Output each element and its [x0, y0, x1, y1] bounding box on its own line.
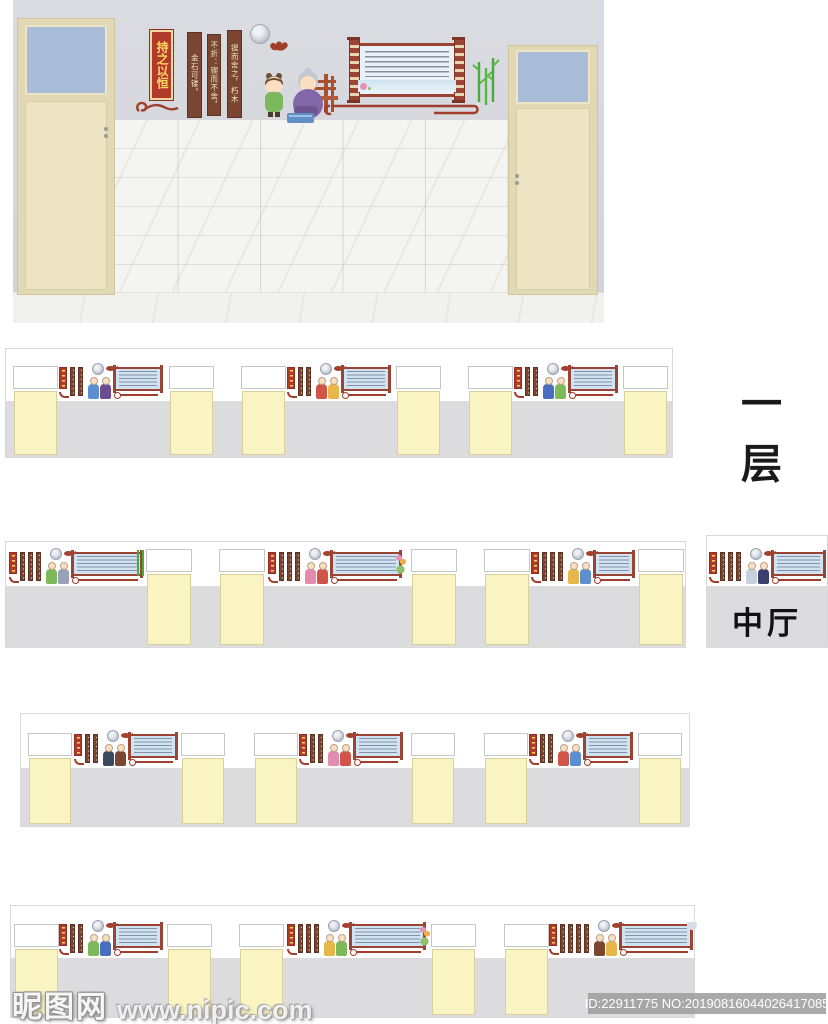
mini-ruyi-icon: [59, 949, 69, 955]
mini-scroll-banner: [620, 924, 692, 948]
door-6: [638, 733, 682, 824]
culture-wall-cluster-2: [287, 363, 392, 401]
mini-figure: [340, 751, 351, 766]
proverb-strip-2: 不折：锲而不舍，: [207, 34, 221, 116]
door-2: [181, 733, 225, 824]
mini-figure: [305, 569, 316, 584]
door-transom-window: [638, 733, 682, 756]
door-panel: [485, 574, 529, 645]
mini-proverb-strip: [542, 552, 547, 581]
mini-scroll-banner: [114, 367, 162, 391]
mini-cartoon-figures: [543, 376, 567, 400]
mini-figure: [558, 751, 569, 766]
door-handle-icon: [104, 127, 108, 131]
door-panel: [168, 949, 211, 1015]
mini-proverb-strip: [287, 552, 292, 581]
door-transom-window: [411, 549, 457, 572]
marble-floor: [13, 292, 604, 323]
fan-icon: [687, 922, 697, 948]
door-panel: [220, 574, 264, 645]
mini-cloud-line-icon: [590, 761, 628, 767]
elevation-row-hall-panel: 中厅: [706, 535, 828, 648]
mini-figure: [758, 569, 769, 584]
left-door-panel: [25, 101, 107, 290]
wainscot-band: [21, 768, 689, 826]
mini-proverb-strip: [36, 552, 41, 581]
door-transom-window: [623, 366, 668, 389]
mini-proverb-strip: [279, 552, 284, 581]
mini-cartoon-figures: [88, 933, 112, 957]
right-door: [508, 45, 598, 295]
cartoon-child-and-grandma: [256, 66, 351, 126]
mini-proverb-strip: [93, 734, 98, 763]
mini-scroll-banner: [331, 552, 401, 576]
mini-figure: [324, 941, 335, 956]
mini-proverb-strip: [310, 734, 315, 763]
door-1: [13, 366, 58, 455]
mini-figure: [100, 941, 111, 956]
wainscot-band: [6, 586, 685, 647]
door-transom-window: [219, 549, 265, 572]
mini-ruyi-icon: [9, 577, 19, 583]
door-panel: [182, 758, 224, 824]
mini-figure: [100, 384, 111, 399]
mini-figure: [555, 384, 566, 399]
mini-cloud-line-icon: [78, 579, 138, 585]
mini-proverb-strip: [85, 734, 90, 763]
mini-plaque: [549, 924, 557, 946]
mini-ruyi-icon: [549, 949, 559, 955]
floor1-label: 一层: [741, 370, 828, 490]
mini-banner-text: [134, 738, 172, 753]
door-transom-window: [169, 366, 214, 389]
door-transom-window: [638, 549, 684, 572]
banner-paragraph-text: [365, 51, 449, 77]
door-panel: [469, 391, 512, 455]
door-panel: [624, 391, 667, 455]
door-panel: [240, 949, 283, 1015]
mini-scroll-banner: [72, 552, 142, 576]
mini-plaque: [529, 734, 537, 756]
mini-ruyi-icon: [74, 759, 84, 765]
door-panel: [412, 574, 456, 645]
mini-ruyi-icon: [514, 392, 524, 398]
mini-proverb-strip: [78, 924, 83, 953]
mini-plaque: [709, 552, 717, 574]
mini-medallion-icon: [562, 730, 574, 742]
culture-wall-cluster-1: [9, 548, 144, 586]
mini-proverb-strip: [295, 552, 300, 581]
mini-proverb-strip: [306, 367, 311, 396]
culture-wall-cluster-1: [709, 548, 827, 586]
door-transom-window: [504, 924, 549, 947]
door-transom-window: [28, 733, 72, 756]
mini-medallion-icon: [328, 920, 340, 932]
door-panel: [255, 758, 297, 824]
mini-scroll-banner: [354, 734, 402, 758]
mini-banner-text: [77, 556, 137, 571]
proverb-strip-3: 锲而舍之，朽木: [227, 30, 242, 118]
mini-cartoon-figures: [746, 561, 770, 585]
bamboo-icon: [471, 50, 503, 105]
mini-proverb-strip: [548, 734, 553, 763]
door-4: [411, 733, 455, 824]
mini-proverb-strip: [70, 367, 75, 396]
mini-plaque: [59, 924, 67, 946]
mini-figure: [46, 569, 57, 584]
right-door-panel: [516, 108, 590, 290]
mini-ruyi-icon: [287, 392, 297, 398]
proverb-strip-1: 金石可镂。: [187, 32, 202, 118]
door-3: [241, 366, 286, 455]
culture-wall-cluster-3: [549, 920, 694, 958]
mini-banner-text: [625, 928, 687, 943]
mini-cloud-line-icon: [778, 579, 821, 585]
door-panel: [505, 949, 548, 1015]
mini-banner-text: [574, 371, 612, 386]
wainscot-band: [6, 401, 672, 457]
mini-cloud-line-icon: [626, 951, 688, 957]
mini-banner-text: [599, 556, 629, 571]
door-panel: [412, 758, 454, 824]
door-transom-window: [468, 366, 513, 389]
mini-banner-text: [359, 738, 397, 753]
left-door: [17, 18, 115, 295]
mini-proverb-strip: [306, 924, 311, 953]
mini-proverb-strip: [298, 924, 303, 953]
mini-medallion-icon: [309, 548, 321, 560]
mini-proverb-strip: [78, 367, 83, 396]
mini-proverb-strip: [525, 367, 530, 396]
door-transom-window: [14, 924, 59, 947]
door-transom-window: [484, 733, 528, 756]
door-5: [468, 366, 513, 455]
mini-medallion-icon: [92, 920, 104, 932]
mini-cloud-line-icon: [356, 951, 421, 957]
door-panel: [242, 391, 285, 455]
culture-wall-cluster-3: [531, 548, 636, 586]
mini-figure: [594, 941, 605, 956]
elevation-row-floor1: [5, 348, 673, 458]
mini-proverb-strip: [584, 924, 589, 953]
mini-medallion-icon: [750, 548, 762, 560]
door-panel: [639, 758, 681, 824]
elevation-row-floor3: [20, 713, 690, 827]
mini-figure: [580, 569, 591, 584]
image-id-bar: ID:22911775 NO:20190816044026417085: [588, 993, 826, 1014]
mini-cloud-line-icon: [360, 761, 398, 767]
mini-proverb-strip: [568, 924, 573, 953]
design-sheet: 持之以恒 金石可镂。 不折：锲而不舍， 锲而舍之，朽木: [0, 0, 828, 1024]
mini-plaque: [74, 734, 82, 756]
door-handle-icon: [515, 174, 519, 178]
mini-medallion-icon: [598, 920, 610, 932]
door-panel: [639, 574, 683, 645]
mini-proverb-strip: [576, 924, 581, 953]
flower-icon: [420, 922, 430, 948]
mini-figure: [543, 384, 554, 399]
mini-medallion-icon: [320, 363, 332, 375]
door-panel: [29, 758, 71, 824]
mini-ruyi-icon: [268, 577, 278, 583]
mini-cartoon-figures: [103, 743, 127, 767]
mini-banner-text: [119, 371, 157, 386]
culture-wall-cluster-1: [74, 730, 179, 768]
mini-proverb-strip: [736, 552, 741, 581]
mini-proverb-strip: [720, 552, 725, 581]
door-2: [169, 366, 214, 455]
door-2: [167, 924, 212, 1015]
mini-banner-text: [589, 738, 627, 753]
door-panel: [14, 391, 57, 455]
mini-figure: [88, 384, 99, 399]
mini-scroll-banner: [584, 734, 632, 758]
door-3: [254, 733, 298, 824]
tile-wainscot: [95, 120, 508, 293]
mini-plaque: [268, 552, 276, 574]
hall-label: 中厅: [707, 598, 827, 643]
mini-ruyi-icon: [529, 759, 539, 765]
door-transom-window: [254, 733, 298, 756]
mini-cartoon-figures: [316, 376, 340, 400]
door-3: [239, 924, 284, 1015]
mini-cloud-line-icon: [600, 579, 630, 585]
mini-medallion-icon: [547, 363, 559, 375]
left-transom-window: [25, 25, 107, 95]
door-4: [431, 924, 476, 1015]
mini-plaque: [9, 552, 17, 574]
mini-figure: [568, 569, 579, 584]
mini-ruyi-icon: [709, 577, 719, 583]
door-6: [623, 366, 668, 455]
door-transom-window: [239, 924, 284, 947]
mini-banner-text: [777, 556, 820, 571]
mini-plaque: [59, 367, 67, 389]
door-4: [396, 366, 441, 455]
interior-render: 持之以恒 金石可镂。 不折：锲而不舍， 锲而舍之，朽木: [13, 0, 604, 323]
door-5: [638, 549, 684, 645]
culture-wall-cluster-2: [268, 548, 403, 586]
mini-figure: [115, 751, 126, 766]
mini-proverb-strip: [28, 552, 33, 581]
mini-scroll-banner: [350, 924, 425, 948]
elevation-row-hall-main: [5, 541, 686, 648]
door-transom-window: [181, 733, 225, 756]
mini-figure: [317, 569, 328, 584]
mini-plaque: [287, 367, 295, 389]
mini-banner-text: [336, 556, 396, 571]
mini-medallion-icon: [50, 548, 62, 560]
door-panel: [432, 949, 475, 1015]
door-panel: [170, 391, 213, 455]
mini-ruyi-icon: [287, 949, 297, 955]
culture-wall-cluster-3: [529, 730, 634, 768]
cloud-swirl-icon: [133, 98, 181, 116]
mini-cloud-line-icon: [575, 394, 613, 400]
mini-medallion-icon: [572, 548, 584, 560]
door-5: [484, 733, 528, 824]
mini-cloud-line-icon: [120, 394, 158, 400]
mini-cartoon-figures: [324, 933, 348, 957]
mini-cartoon-figures: [568, 561, 592, 585]
mini-figure: [328, 384, 339, 399]
mini-cloud-line-icon: [120, 951, 158, 957]
mini-proverb-strip: [533, 367, 538, 396]
door-3: [411, 549, 457, 645]
red-cloud-icon: [267, 36, 291, 52]
mini-ruyi-icon: [531, 577, 541, 583]
mini-ruyi-icon: [59, 392, 69, 398]
door-transom-window: [396, 366, 441, 389]
mini-banner-text: [347, 371, 385, 386]
mini-figure: [336, 941, 347, 956]
mini-proverb-strip: [550, 552, 555, 581]
mini-proverb-strip: [70, 924, 75, 953]
door-transom-window: [167, 924, 212, 947]
motto-plaque: 持之以恒: [150, 30, 173, 100]
mini-scroll-banner: [342, 367, 390, 391]
mini-cloud-line-icon: [348, 394, 386, 400]
flower-icon: [396, 550, 406, 576]
culture-wall-cluster-3: [514, 363, 619, 401]
mini-cartoon-figures: [594, 933, 618, 957]
mini-banner-text: [119, 928, 157, 943]
cloud-line-icon: [318, 102, 488, 117]
mini-proverb-strip: [728, 552, 733, 581]
culture-wall-cluster-2: [299, 730, 404, 768]
mini-cloud-line-icon: [135, 761, 173, 767]
door-panel: [397, 391, 440, 455]
mini-cartoon-figures: [558, 743, 582, 767]
mini-scroll-banner: [772, 552, 825, 576]
mini-ruyi-icon: [299, 759, 309, 765]
door-transom-window: [411, 733, 455, 756]
mini-proverb-strip: [560, 924, 565, 953]
door-panel: [147, 574, 191, 645]
culture-wall-cluster-2: [287, 920, 427, 958]
door-transom-window: [484, 549, 530, 572]
mini-scroll-banner: [569, 367, 617, 391]
door-transom-window: [13, 366, 58, 389]
mini-medallion-icon: [107, 730, 119, 742]
mini-proverb-strip: [314, 924, 319, 953]
mini-plaque: [287, 924, 295, 946]
door-1: [14, 924, 59, 1015]
mini-figure: [570, 751, 581, 766]
mini-figure: [103, 751, 114, 766]
mini-proverb-strip: [298, 367, 303, 396]
mini-banner-text: [355, 928, 420, 943]
mini-medallion-icon: [332, 730, 344, 742]
door-transom-window: [146, 549, 192, 572]
mini-proverb-strip: [20, 552, 25, 581]
mini-figure: [316, 384, 327, 399]
mini-medallion-icon: [92, 363, 104, 375]
mini-cartoon-figures: [305, 561, 329, 585]
mini-cartoon-figures: [88, 376, 112, 400]
mini-proverb-strip: [318, 734, 323, 763]
mini-cloud-line-icon: [337, 579, 397, 585]
mini-scroll-banner: [129, 734, 177, 758]
door-1: [28, 733, 72, 824]
mini-figure: [58, 569, 69, 584]
door-1: [146, 549, 192, 645]
door-panel: [485, 758, 527, 824]
scroll-banner: [352, 43, 462, 97]
mini-figure: [606, 941, 617, 956]
banner-lotus-scene: [358, 80, 456, 92]
bamboo-icon: [137, 550, 147, 576]
mini-figure: [88, 941, 99, 956]
culture-wall-cluster-1: [59, 363, 164, 401]
door-2: [219, 549, 265, 645]
right-transom-window: [516, 50, 590, 104]
mini-cartoon-figures: [328, 743, 352, 767]
door-transom-window: [431, 924, 476, 947]
mini-plaque: [531, 552, 539, 574]
mini-scroll-banner: [114, 924, 162, 948]
door-transom-window: [241, 366, 286, 389]
mini-figure: [328, 751, 339, 766]
door-panel: [15, 949, 58, 1015]
mini-figure: [746, 569, 757, 584]
mini-proverb-strip: [540, 734, 545, 763]
culture-wall-cluster-1: [59, 920, 164, 958]
mini-proverb-strip: [558, 552, 563, 581]
door-4: [484, 549, 530, 645]
mini-cartoon-figures: [46, 561, 70, 585]
mini-plaque: [514, 367, 522, 389]
mini-plaque: [299, 734, 307, 756]
door-5: [504, 924, 549, 1015]
mini-scroll-banner: [594, 552, 634, 576]
